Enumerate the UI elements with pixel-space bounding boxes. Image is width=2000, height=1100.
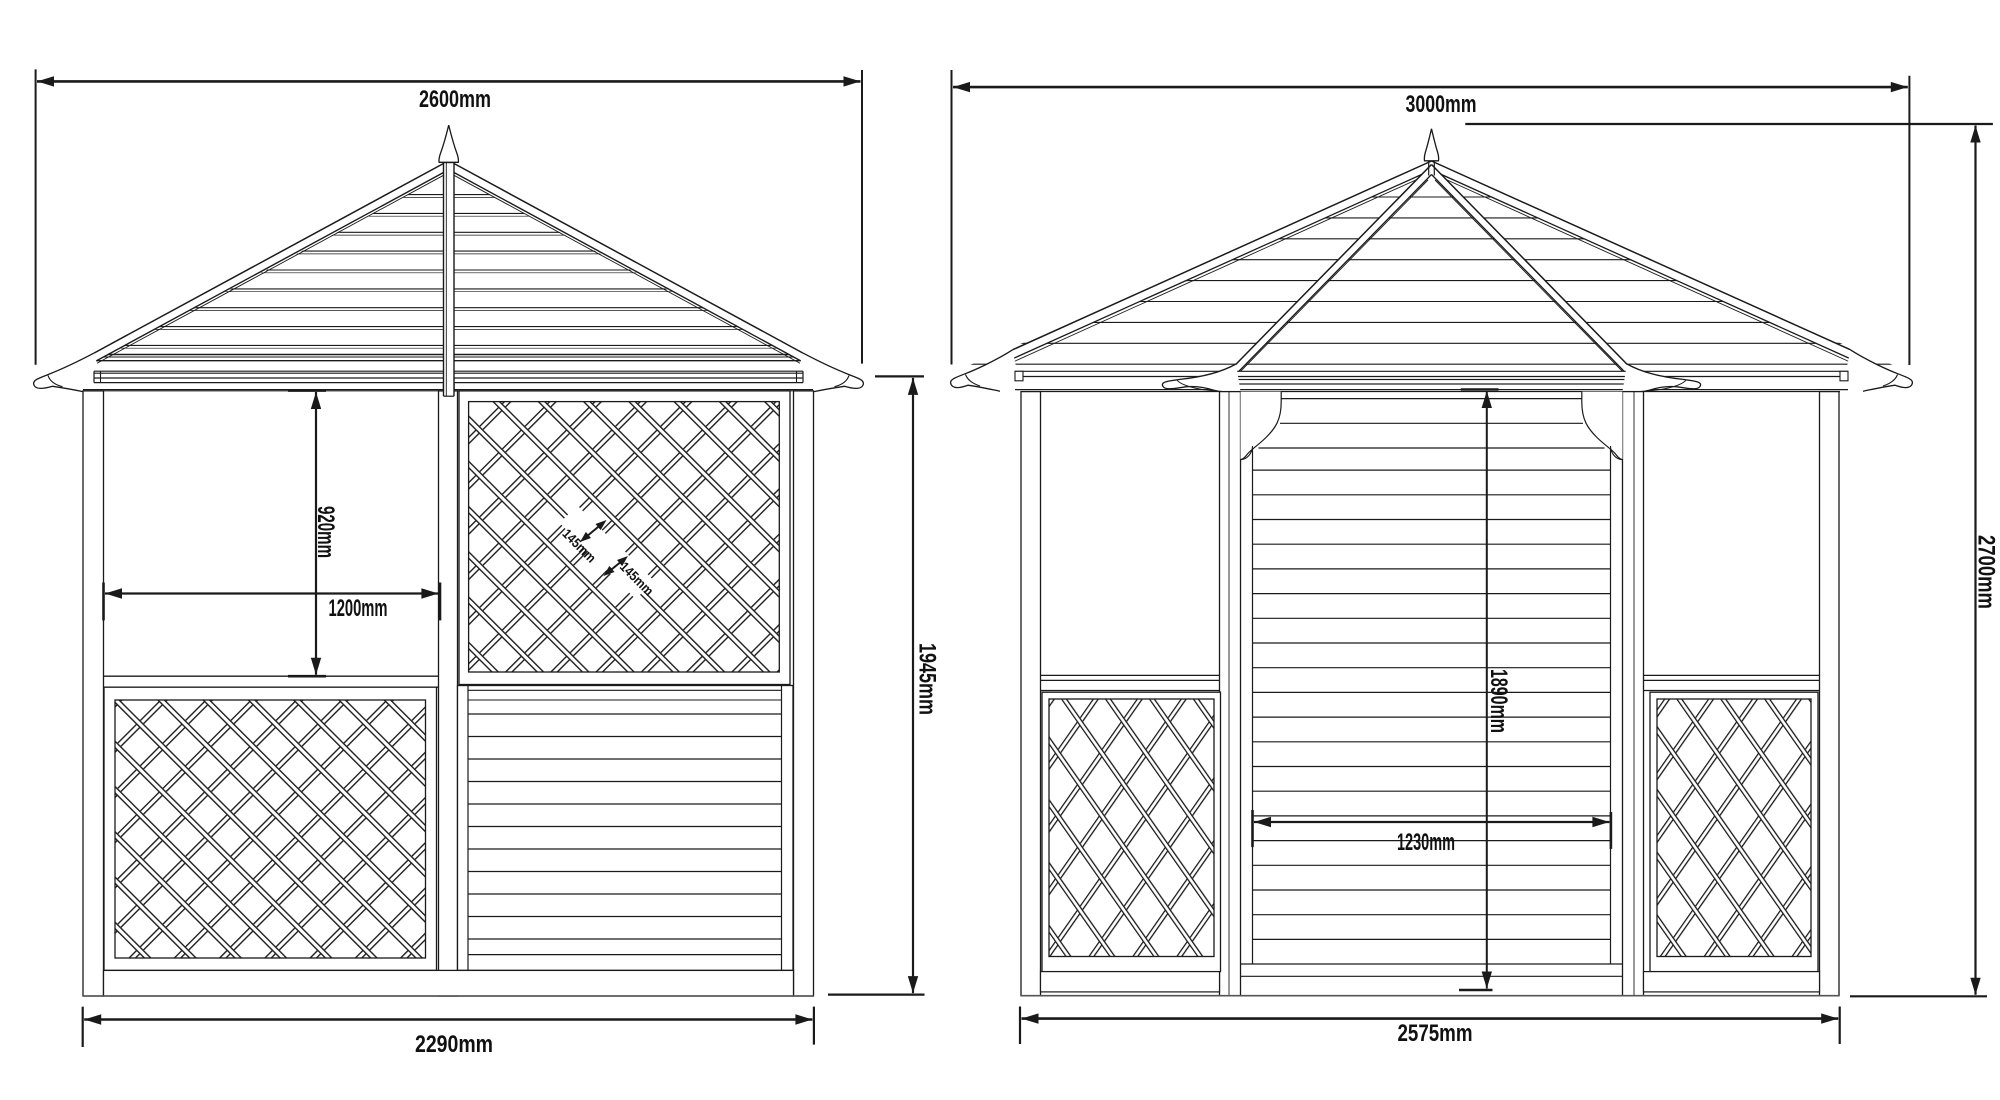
svg-text:2290mm: 2290mm (415, 1031, 493, 1058)
svg-text:1200mm: 1200mm (329, 595, 388, 622)
svg-text:920mm: 920mm (312, 506, 339, 558)
svg-text:2575mm: 2575mm (1398, 1020, 1473, 1047)
svg-text:3000mm: 3000mm (1406, 91, 1477, 118)
svg-text:1890mm: 1890mm (1485, 669, 1512, 733)
svg-text:2700mm: 2700mm (1973, 535, 2000, 609)
svg-text:2600mm: 2600mm (419, 86, 491, 113)
svg-text:1230mm: 1230mm (1397, 829, 1455, 856)
svg-text:1945mm: 1945mm (914, 643, 941, 715)
